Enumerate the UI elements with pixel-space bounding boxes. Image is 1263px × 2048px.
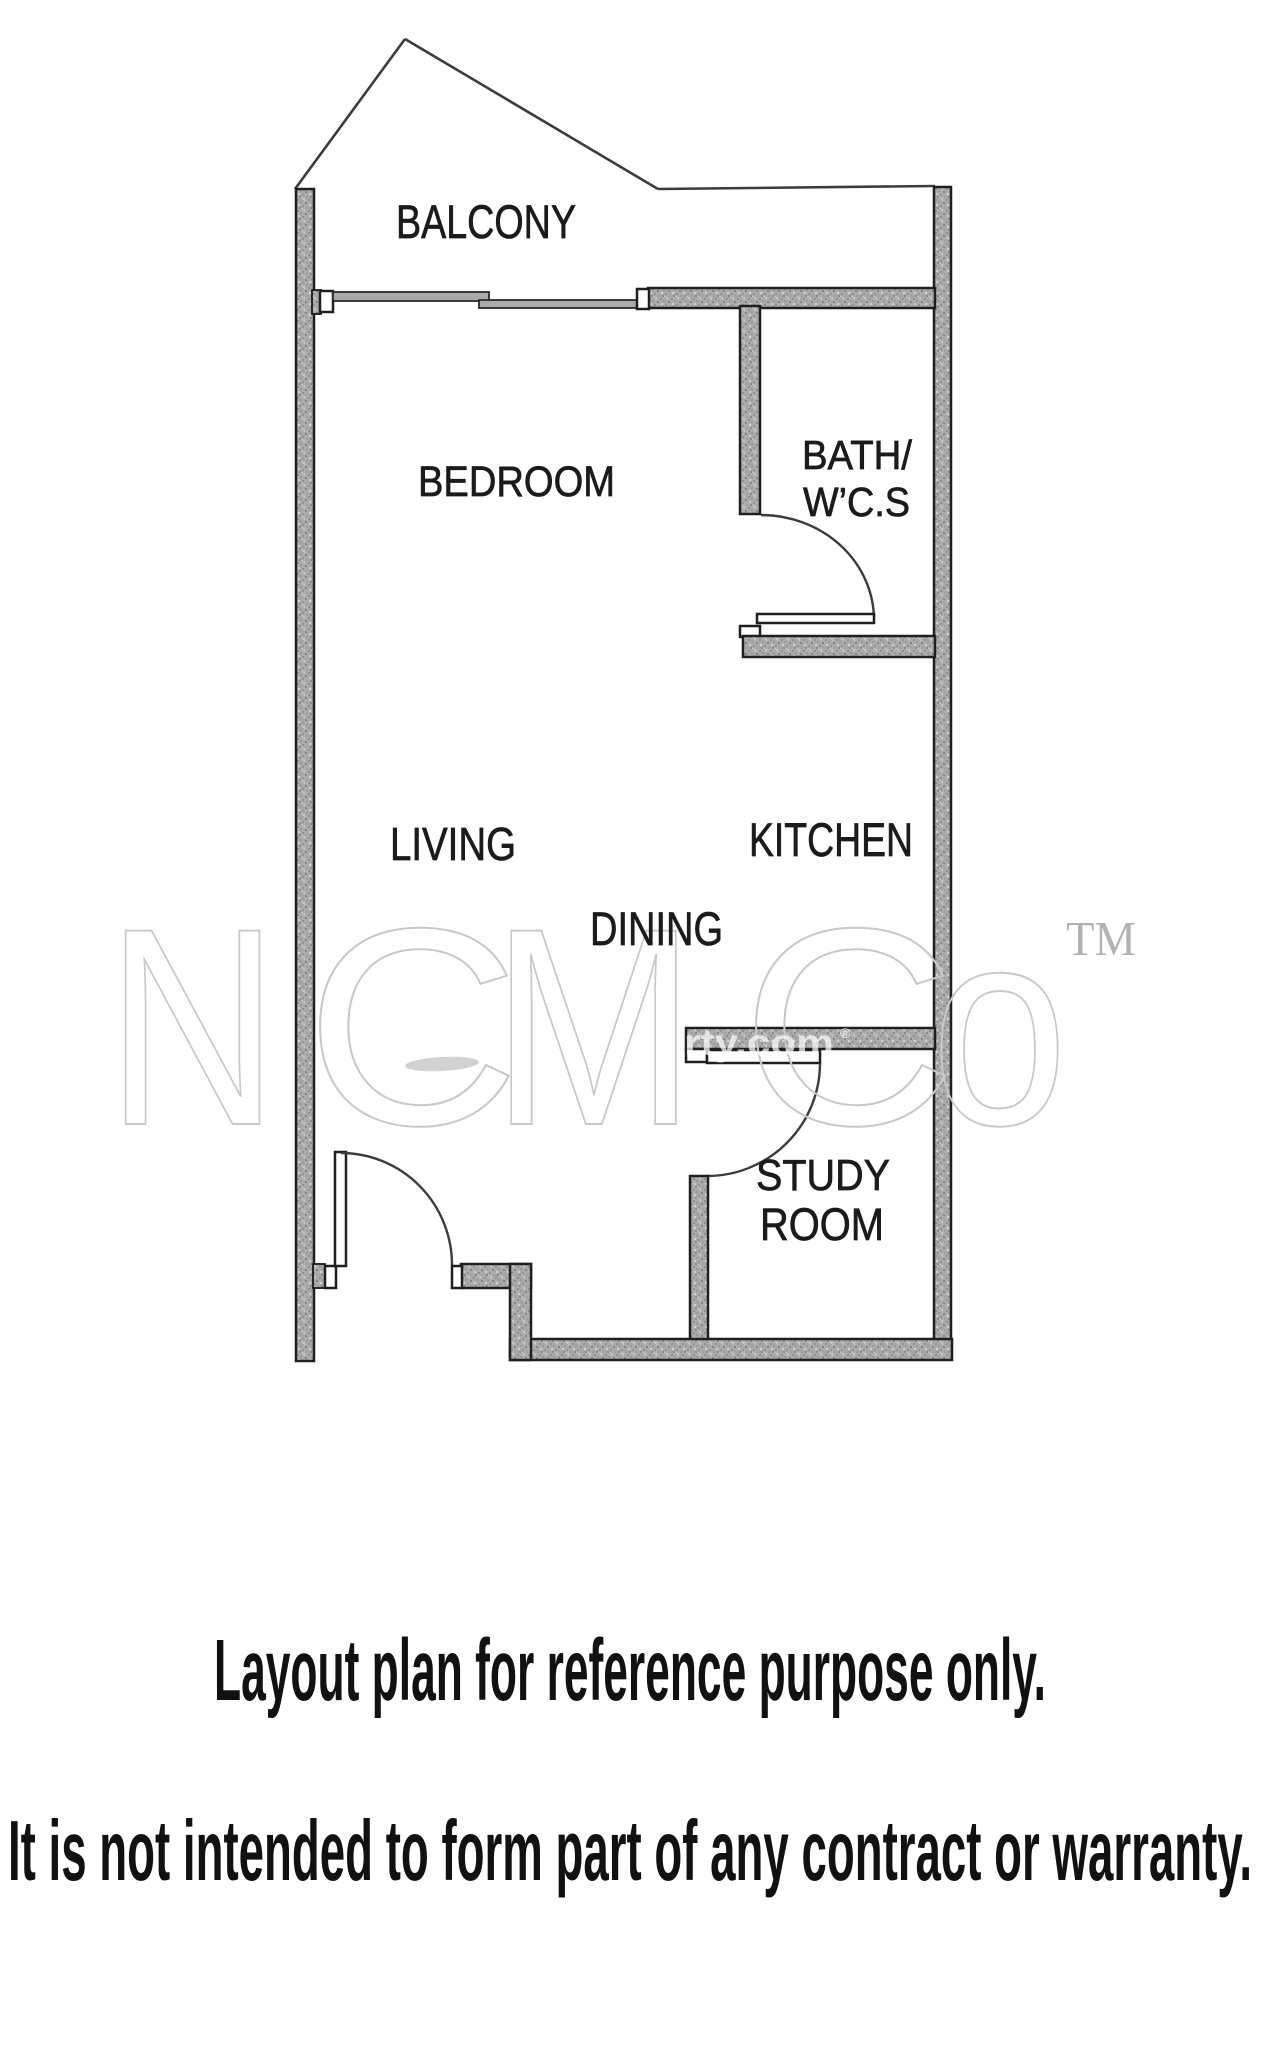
svg-text:rty.com: rty.com	[684, 1022, 834, 1063]
svg-text:LIVING: LIVING	[390, 818, 516, 870]
svg-text:KITCHEN: KITCHEN	[749, 813, 913, 866]
svg-text:o: o	[931, 870, 1068, 1184]
svg-text:C: C	[305, 870, 520, 1184]
svg-text:BATH/: BATH/	[802, 432, 913, 478]
svg-text:TM: TM	[1066, 911, 1136, 966]
svg-text:ROOM: ROOM	[760, 1199, 884, 1250]
svg-text:DINING: DINING	[590, 902, 723, 955]
svg-text:BEDROOM: BEDROOM	[418, 458, 615, 506]
svg-text:W’C.S: W’C.S	[803, 479, 910, 525]
svg-text:STUDY: STUDY	[756, 1151, 890, 1200]
svg-text:®: ®	[840, 1025, 851, 1041]
svg-text:It is not intended to form par: It is not intended to form part of any c…	[8, 1804, 1252, 1899]
svg-text:Layout plan for reference purp: Layout plan for reference purpose only.	[214, 1622, 1046, 1719]
svg-text:BALCONY: BALCONY	[396, 195, 576, 248]
svg-text:N: N	[106, 870, 279, 1184]
